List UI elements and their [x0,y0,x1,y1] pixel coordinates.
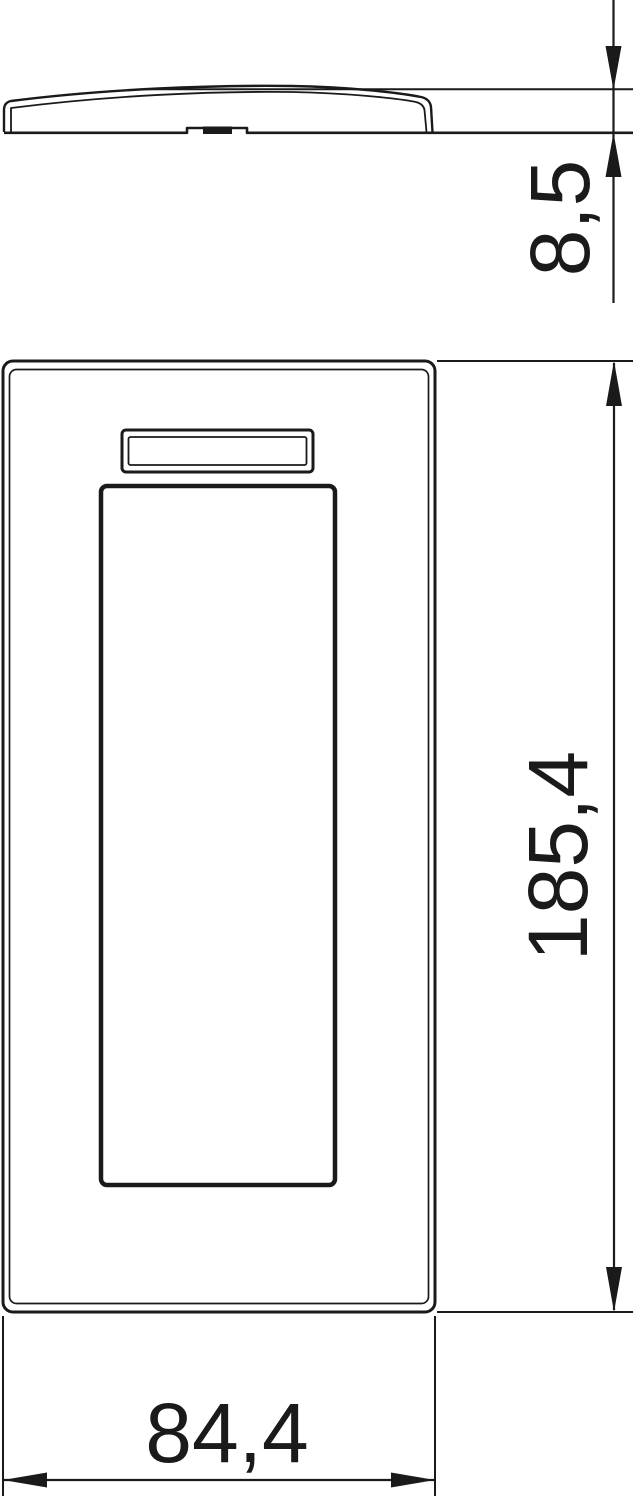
side-profile-view [4,86,633,134]
front-view [3,361,435,1312]
arrowhead-down-icon [606,46,622,90]
cover-bevel-edge [10,370,429,1304]
arrowhead-down-icon [606,1267,622,1312]
cover-outer-edge [3,361,435,1312]
arrowhead-left-icon [3,1473,47,1488]
arrowhead-up-icon [606,133,622,177]
arrowhead-right-icon [391,1473,435,1488]
drawing-linework [0,0,633,1500]
profile-bottom-edge [4,128,633,133]
dim-width [3,1316,435,1496]
dim-height [437,361,633,1312]
profile-latch-tab [203,127,232,135]
label-window-inner [129,437,307,465]
technical-drawing: 8,5 185,4 84,4 [0,0,633,1500]
module-opening [101,486,335,1185]
profile-inner-curve [11,92,427,132]
arrowhead-up-icon [606,361,622,406]
dim-thickness [145,0,633,303]
